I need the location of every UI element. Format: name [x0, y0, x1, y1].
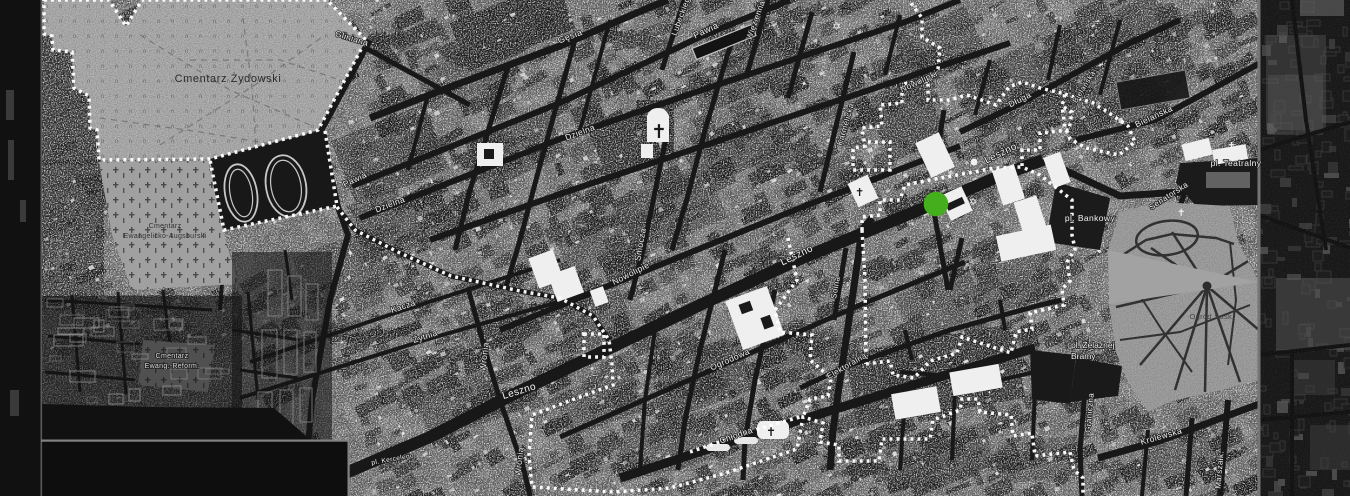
svg-text:✝: ✝ — [1177, 208, 1185, 219]
svg-text:✡: ✡ — [969, 197, 977, 208]
svg-text:✡: ✡ — [832, 21, 841, 33]
svg-text:pl. Bankowy: pl. Bankowy — [1065, 213, 1116, 223]
svg-text:✝: ✝ — [1227, 141, 1236, 153]
svg-text:Cmentarz Żydowski: Cmentarz Żydowski — [175, 72, 282, 85]
svg-text:pl. Teatralny: pl. Teatralny — [1211, 158, 1262, 168]
svg-text:Cmentarz: Cmentarz — [149, 223, 182, 230]
svg-text:Ogród Sask.: Ogród Sask. — [1190, 312, 1235, 321]
svg-text:Ewangelicko-Augsburski: Ewangelicko-Augsburski — [124, 233, 207, 240]
svg-text:Ewang.-Reform.: Ewang.-Reform. — [145, 363, 200, 370]
svg-text:✝: ✝ — [855, 187, 864, 199]
svg-text:✝: ✝ — [651, 122, 667, 143]
svg-text:✝: ✝ — [766, 425, 776, 439]
svg-text:Bramy: Bramy — [1071, 351, 1096, 361]
svg-text:Cmentarz: Cmentarz — [156, 353, 189, 360]
svg-text:pl. Żelaznej: pl. Żelaznej — [1071, 340, 1115, 350]
